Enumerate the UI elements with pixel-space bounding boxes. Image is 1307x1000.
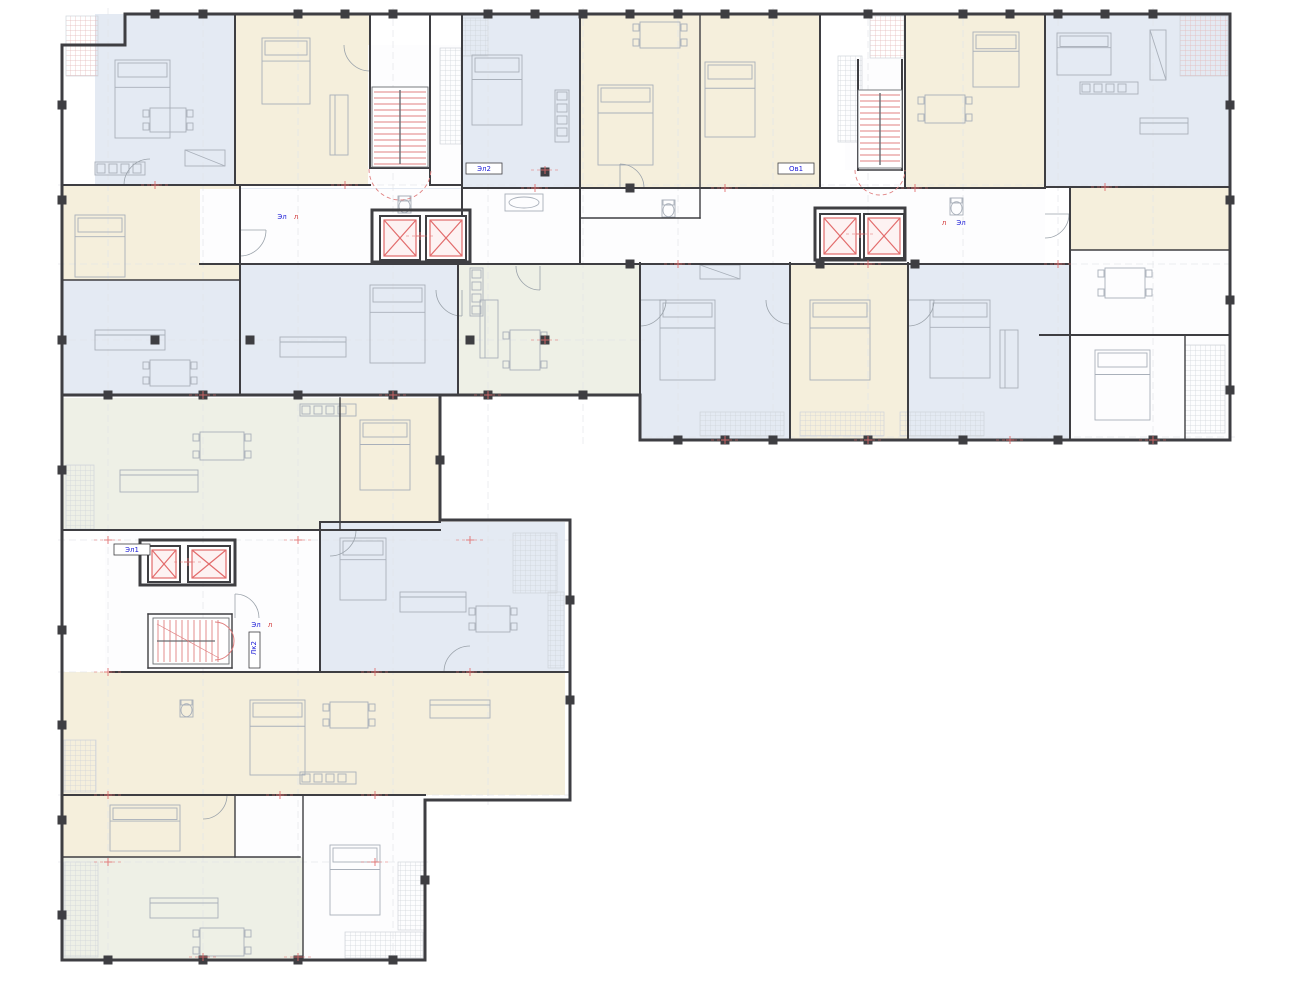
svg-text:Ов1: Ов1: [789, 165, 803, 173]
structural-column: [626, 184, 635, 193]
apartment-area: [1070, 250, 1230, 335]
structural-column: [911, 260, 920, 269]
balcony-hatch: [66, 465, 94, 529]
balcony-hatch: [700, 412, 784, 436]
plan-label: Эл2: [466, 163, 502, 174]
elevator-shaft-icon: [864, 214, 904, 258]
structural-column: [294, 391, 303, 400]
balcony-hatch: [800, 412, 884, 436]
svg-text:Эл: Эл: [956, 219, 965, 227]
balcony-hatch: [64, 740, 96, 792]
structural-column: [466, 336, 475, 345]
structural-column: [58, 816, 67, 825]
balcony-hatch: [513, 533, 557, 593]
structural-column: [626, 10, 635, 19]
structural-column: [151, 336, 160, 345]
structural-column: [769, 10, 778, 19]
structural-column: [566, 596, 575, 605]
svg-text:Эл1: Эл1: [125, 546, 139, 554]
door-swing-icon: [1045, 214, 1069, 238]
structural-column: [769, 436, 778, 445]
plan-label: л: [294, 213, 298, 221]
structural-column: [721, 10, 730, 19]
structural-column: [341, 10, 350, 19]
structural-column: [58, 626, 67, 635]
balcony-hatch: [398, 862, 424, 930]
svg-text:л: л: [294, 213, 298, 221]
svg-text:Эл2: Эл2: [477, 165, 491, 173]
structural-column: [959, 10, 968, 19]
balcony-hatch: [462, 18, 488, 56]
structural-column: [566, 696, 575, 705]
apartment-area: [235, 795, 303, 857]
apartment-area: [95, 14, 235, 185]
structural-column: [1006, 10, 1015, 19]
structural-column: [1226, 386, 1235, 395]
svg-text:л: л: [942, 219, 946, 227]
apartment-area: [200, 189, 1045, 263]
plan-label: Лк2: [249, 632, 260, 668]
structural-column: [58, 196, 67, 205]
structural-column: [816, 260, 825, 269]
structural-column: [1054, 10, 1063, 19]
structural-column: [421, 876, 430, 885]
structural-column: [58, 911, 67, 920]
svg-text:Лк2: Лк2: [250, 641, 258, 655]
structural-column: [674, 436, 683, 445]
structural-column: [246, 336, 255, 345]
balcony-hatch: [900, 412, 984, 436]
structural-column: [58, 721, 67, 730]
structural-column: [389, 956, 398, 965]
elevator-shaft-icon: [148, 546, 180, 582]
plan-label: Эл: [277, 213, 286, 221]
elevator-shaft-icon: [188, 546, 230, 582]
balcony-hatch: [548, 592, 564, 668]
apartment-area: [235, 14, 370, 185]
plan-label: Ов1: [778, 163, 814, 174]
structural-column: [58, 466, 67, 475]
apartment-area: [62, 795, 235, 857]
plan-label: Эл1: [114, 544, 150, 555]
structural-column: [58, 336, 67, 345]
apartment-area: [340, 398, 440, 530]
structural-column: [1101, 10, 1110, 19]
plan-label: Эл: [251, 621, 260, 629]
elevator-shaft-icon: [426, 216, 466, 260]
apartment-area: [1070, 187, 1230, 250]
structural-column: [104, 956, 113, 965]
balcony-hatch: [345, 932, 423, 958]
structural-column: [58, 101, 67, 110]
balcony-hatch: [1180, 16, 1228, 76]
stair-flight-icon: [855, 90, 905, 195]
structural-column: [104, 391, 113, 400]
structural-column: [484, 10, 493, 19]
structural-column: [151, 10, 160, 19]
structural-column: [1226, 296, 1235, 305]
apartment-area: [62, 672, 565, 795]
structural-column: [579, 391, 588, 400]
floor-plan: Эл2Ов1ЭлллЭлЭл1ЭллЛк2: [0, 0, 1307, 1000]
floor-plan-canvas: Эл2Ов1ЭлллЭлЭл1ЭллЛк2: [0, 0, 1307, 1000]
structural-column: [959, 436, 968, 445]
structural-column: [1226, 101, 1235, 110]
structural-column: [1226, 196, 1235, 205]
structural-column: [579, 10, 588, 19]
elevator-shaft-icon: [380, 216, 420, 260]
structural-column: [626, 260, 635, 269]
plan-label: л: [942, 219, 946, 227]
structural-column: [531, 10, 540, 19]
stair-flight-icon: [153, 618, 234, 664]
structural-column: [436, 456, 445, 465]
structural-column: [864, 10, 873, 19]
plan-label: Эл: [956, 219, 965, 227]
structural-column: [1054, 436, 1063, 445]
balcony-hatch: [1185, 345, 1225, 433]
balcony-hatch: [440, 48, 462, 144]
elevator-shaft-icon: [820, 214, 860, 258]
plan-label: л: [268, 621, 272, 629]
structural-column: [674, 10, 683, 19]
structural-column: [294, 10, 303, 19]
structural-column: [199, 10, 208, 19]
svg-text:л: л: [268, 621, 272, 629]
structural-column: [1149, 10, 1158, 19]
balcony-hatch: [64, 862, 98, 957]
structural-column: [389, 10, 398, 19]
apartment-area: [905, 14, 1045, 187]
balcony-hatch: [870, 16, 904, 58]
svg-text:Эл: Эл: [277, 213, 286, 221]
svg-text:Эл: Эл: [251, 621, 260, 629]
